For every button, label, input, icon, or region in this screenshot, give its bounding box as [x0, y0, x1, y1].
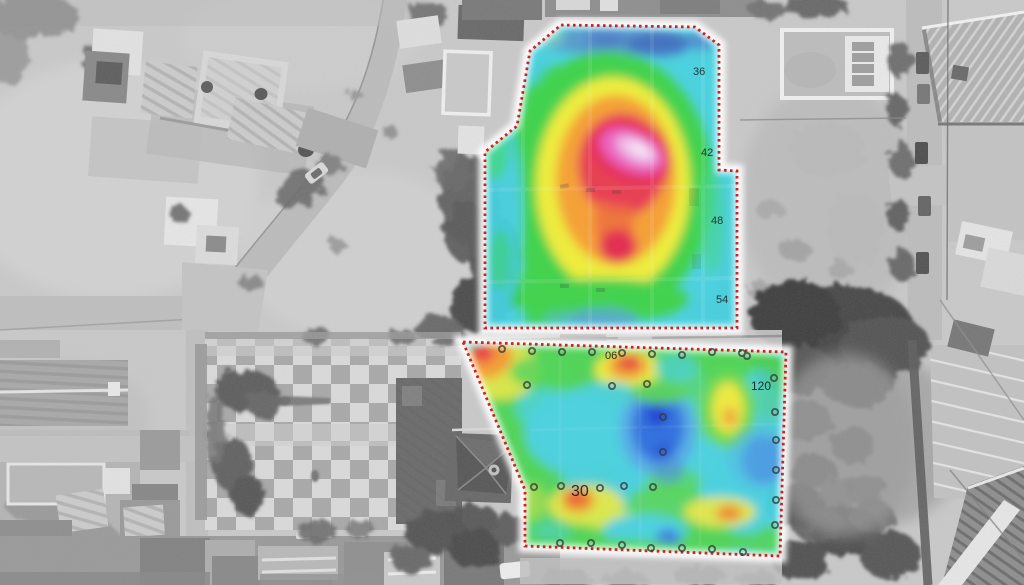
svg-text:30: 30 [571, 483, 589, 500]
svg-text:120: 120 [751, 379, 771, 393]
svg-text:06: 06 [605, 350, 617, 362]
svg-text:42: 42 [701, 147, 713, 159]
svg-text:36: 36 [693, 66, 705, 78]
svg-text:48: 48 [711, 215, 723, 227]
svg-text:54: 54 [716, 294, 728, 306]
